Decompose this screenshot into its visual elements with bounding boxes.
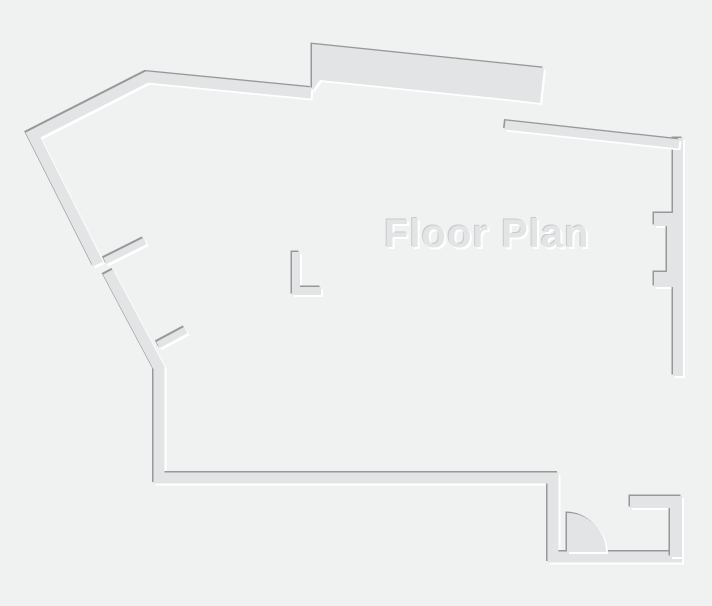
floor-plan-drawing [0,0,712,606]
floor-plan-page: Floor Plan [0,0,712,606]
floor-plan-title: Floor Plan [384,212,590,257]
floor-plan-background [0,0,712,606]
